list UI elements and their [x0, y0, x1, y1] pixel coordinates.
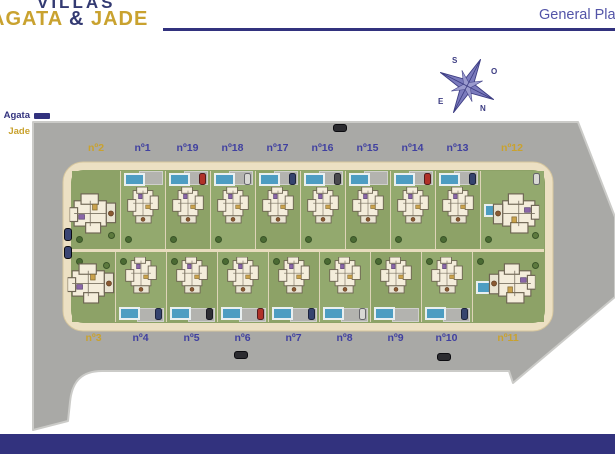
tree [76, 236, 83, 243]
plot-n8 [319, 252, 370, 322]
swimming-pool [170, 307, 191, 320]
tree [350, 236, 357, 243]
plot-n12 [480, 171, 544, 249]
villa-roof [378, 257, 414, 298]
path-car [64, 246, 72, 259]
villa-roof [482, 260, 535, 306]
plot-label-n19: nº19 [166, 142, 210, 154]
swimming-pool [259, 173, 280, 186]
plot-n2 [72, 171, 120, 249]
plot-n15 [345, 171, 390, 249]
swimming-pool [425, 307, 446, 320]
swimming-pool [304, 173, 325, 186]
swimming-pool [119, 307, 140, 320]
row-divider [72, 249, 544, 252]
road-car [437, 353, 451, 361]
plot-n13 [435, 171, 480, 249]
plot-label-n13: nº13 [436, 142, 480, 154]
plot-label-n12: nº12 [490, 142, 534, 154]
parked-car [469, 173, 476, 185]
parked-car [289, 173, 296, 185]
plot-label-n16: nº16 [301, 142, 345, 154]
swimming-pool [272, 307, 293, 320]
brochure-page: VILLAS AGATA & JADE General Plan Agata J… [0, 0, 615, 454]
plot-n3 [72, 252, 115, 322]
tree [260, 236, 267, 243]
plot-n10 [421, 252, 472, 322]
plot-label-n15: nº15 [346, 142, 390, 154]
villa-roof [440, 187, 476, 228]
parked-car [206, 308, 213, 320]
villa-roof [429, 257, 465, 298]
swimming-pool [214, 173, 235, 186]
plot-label-n10: nº10 [425, 332, 469, 344]
plot-n9 [370, 252, 421, 322]
villa-roof [123, 257, 159, 298]
plot-n6 [217, 252, 268, 322]
swimming-pool [221, 307, 242, 320]
plot-label-n4: nº4 [119, 332, 163, 344]
tree [170, 236, 177, 243]
swimming-pool [374, 307, 395, 320]
plot-n1 [120, 171, 165, 249]
villa-roof [125, 187, 161, 228]
swimming-pool [169, 173, 190, 186]
parked-car [533, 173, 540, 185]
parked-car [424, 173, 431, 185]
villa-roof [215, 187, 251, 228]
path-car [64, 228, 72, 241]
road-car [333, 124, 347, 132]
plot-n14 [390, 171, 435, 249]
swimming-pool [394, 173, 415, 186]
swimming-pool [439, 173, 460, 186]
footer-bar [0, 434, 615, 454]
tree [395, 236, 402, 243]
parked-car [257, 308, 264, 320]
villa-roof [350, 187, 386, 228]
parked-car [334, 173, 341, 185]
plot-label-n1: nº1 [121, 142, 165, 154]
villa-roof [174, 257, 210, 298]
villa-roof [305, 187, 341, 228]
parked-car [359, 308, 366, 320]
driveway [392, 308, 420, 322]
tree [215, 236, 222, 243]
swimming-pool [349, 173, 370, 186]
plot-n5 [166, 252, 217, 322]
villa-roof [395, 187, 431, 228]
plot-label-n14: nº14 [391, 142, 435, 154]
plot-label-n11: nº11 [486, 332, 530, 344]
road-car [234, 351, 248, 359]
swimming-pool [323, 307, 344, 320]
plot-label-n2: nº2 [74, 142, 118, 154]
parked-car [199, 173, 206, 185]
swimming-pool [124, 173, 145, 186]
plot-n11 [472, 252, 544, 322]
parked-car [461, 308, 468, 320]
parked-car [308, 308, 315, 320]
plot-n4 [115, 252, 166, 322]
tree [440, 236, 447, 243]
plot-label-n6: nº6 [221, 332, 265, 344]
plot-label-n9: nº9 [374, 332, 418, 344]
plot-label-n8: nº8 [323, 332, 367, 344]
plot-label-n3: nº3 [72, 332, 116, 344]
villa-roof [225, 257, 261, 298]
villa-roof [67, 260, 120, 306]
plot-label-n7: nº7 [272, 332, 316, 344]
plot-label-n5: nº5 [170, 332, 214, 344]
plot-label-n18: nº18 [211, 142, 255, 154]
plot-n18 [210, 171, 255, 249]
plot-label-n17: nº17 [256, 142, 300, 154]
villa-roof [70, 190, 123, 236]
plot-n17 [255, 171, 300, 249]
villa-roof [276, 257, 312, 298]
tree [485, 236, 492, 243]
villa-roof [170, 187, 206, 228]
villa-roof [260, 187, 296, 228]
plot-n16 [300, 171, 345, 249]
tree [305, 236, 312, 243]
plot-n19 [165, 171, 210, 249]
parked-car [155, 308, 162, 320]
plot-n7 [268, 252, 319, 322]
villa-roof [486, 190, 539, 236]
villa-roof [327, 257, 363, 298]
parked-car [244, 173, 251, 185]
tree [125, 236, 132, 243]
